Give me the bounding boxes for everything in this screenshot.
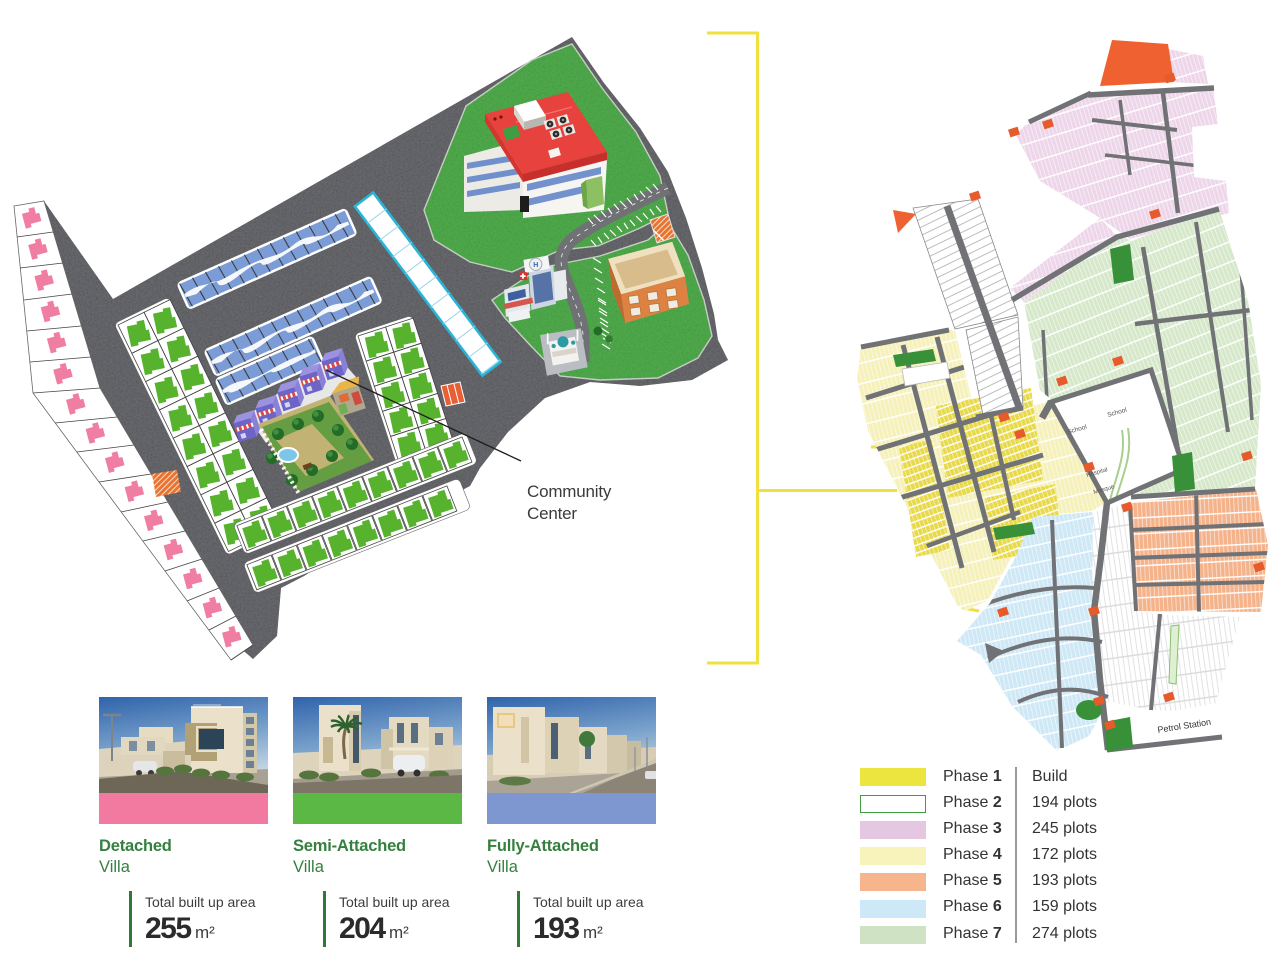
svg-text:H: H [533,262,538,269]
